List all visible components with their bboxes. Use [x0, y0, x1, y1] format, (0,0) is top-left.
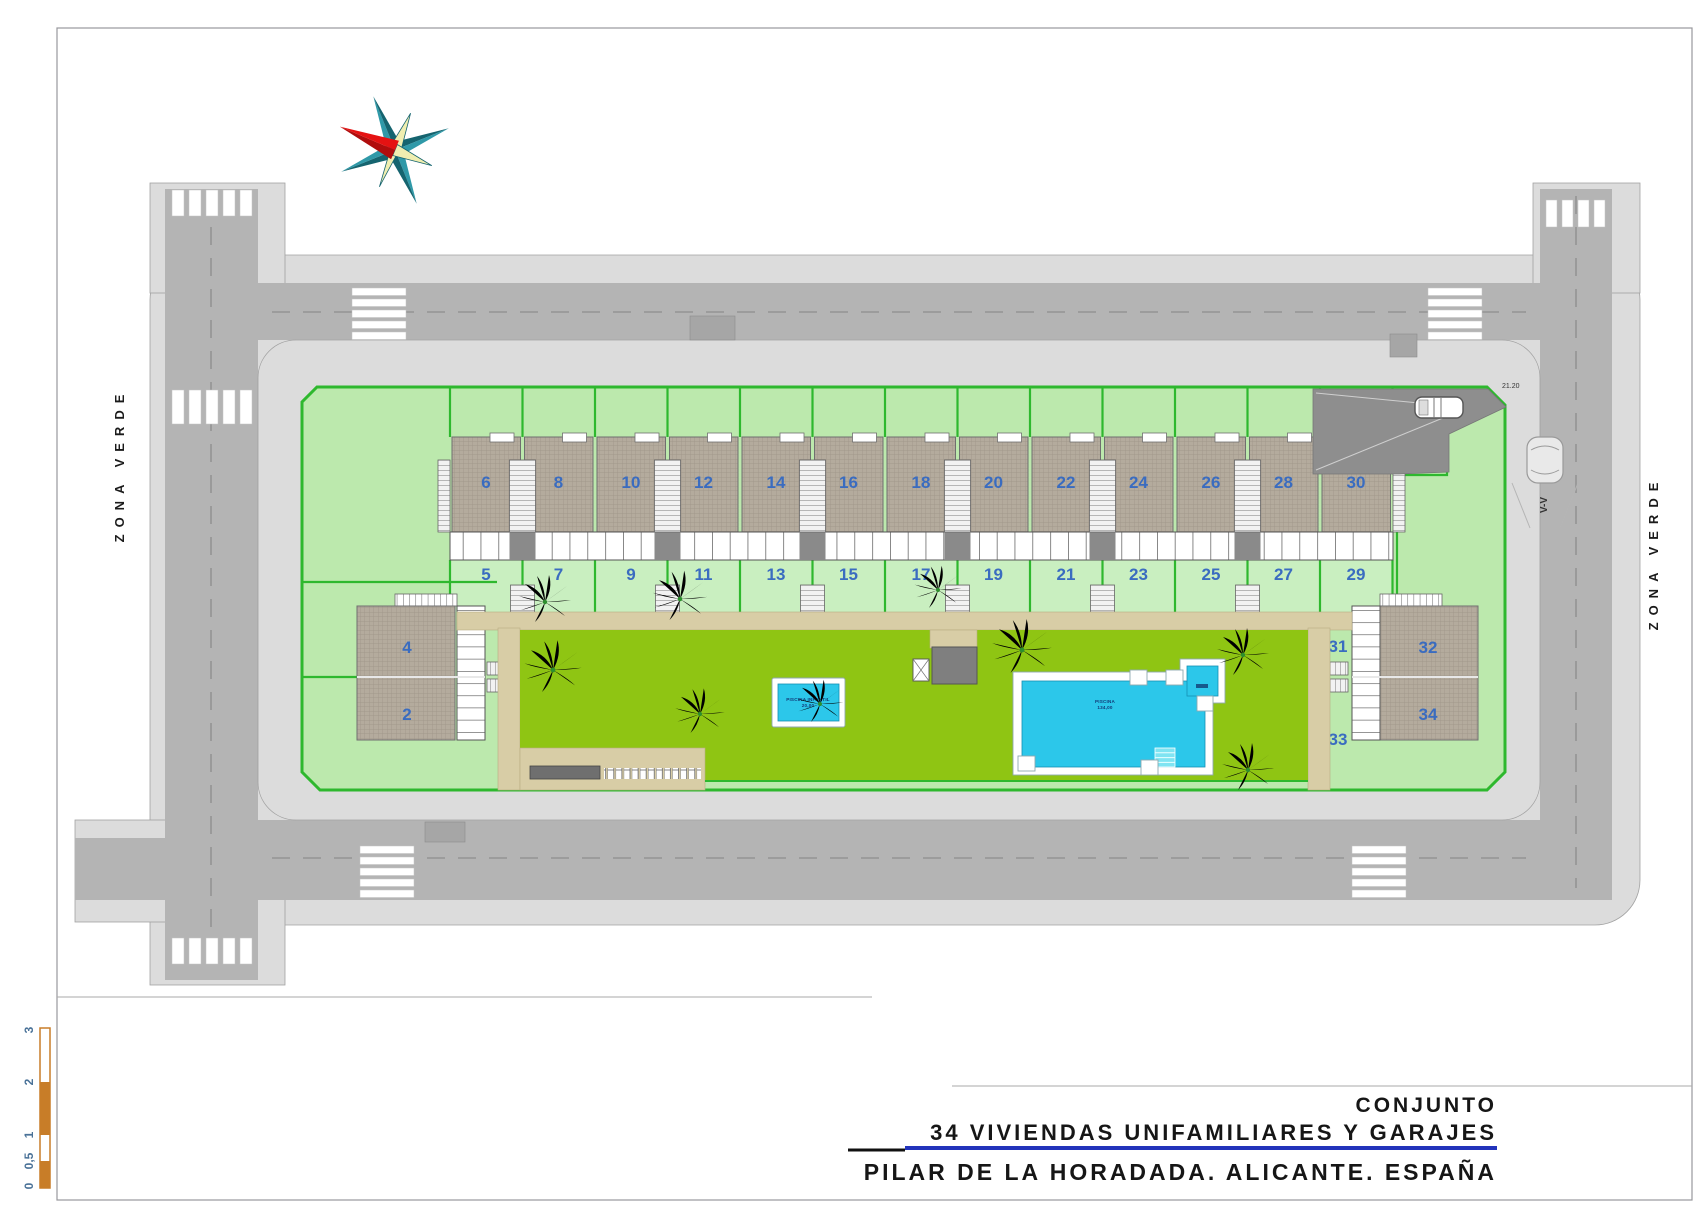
house-number: 16	[839, 473, 858, 492]
utility-box	[913, 659, 929, 681]
road-bay-corner	[1390, 334, 1417, 357]
garden-number: 7	[554, 565, 563, 584]
house-number: 8	[554, 473, 563, 492]
scale-tick: 1	[22, 1131, 36, 1138]
garden-number: 5	[481, 565, 490, 584]
garden-number: 13	[767, 565, 786, 584]
crosswalk-top-road-right	[1428, 288, 1482, 340]
main-pool: PISCINA 134,00	[1013, 659, 1225, 775]
car-icon	[1415, 397, 1463, 418]
bench-row	[604, 768, 701, 779]
vv-parking-label: V-V	[1539, 497, 1550, 513]
utility-apron	[930, 630, 977, 648]
road-bay-top	[690, 316, 735, 340]
title-block: CONJUNTO 34 VIVIENDAS UNIFAMILIARES Y GA…	[848, 1094, 1497, 1185]
garden-number: 25	[1202, 565, 1221, 584]
crosswalk-top-road-left	[352, 288, 406, 340]
house-number: 20	[984, 473, 1003, 492]
zona-verde-left-label: ZONA VERDE	[112, 388, 127, 543]
project-subtitle: 34 VIVIENDAS UNIFAMILIARES Y GARAJES	[930, 1120, 1497, 1145]
zona-verde-right-label: ZONA VERDE	[1646, 476, 1661, 631]
compass-rose-icon	[340, 96, 449, 204]
path-right	[1308, 628, 1330, 790]
main-pool-label: PISCINA	[1095, 699, 1116, 704]
road-bay-bottom	[425, 822, 465, 842]
path-left	[498, 628, 520, 790]
garden-number: 19	[984, 565, 1003, 584]
garden-number: 33	[1329, 730, 1348, 749]
garden-number: 15	[839, 565, 858, 584]
crosswalk-left-road	[172, 390, 252, 424]
crosswalk-bottom-left-stub	[172, 938, 252, 964]
utility-building	[932, 647, 977, 684]
main-pool-area: 134,00	[1097, 705, 1112, 710]
terrace-strip	[1352, 606, 1380, 740]
house-number: 34	[1419, 705, 1438, 724]
house-number: 18	[912, 473, 931, 492]
house-number: 30	[1347, 473, 1366, 492]
house-number: 12	[694, 473, 713, 492]
garden-number: 9	[626, 565, 635, 584]
crosswalk-top-left-stub	[172, 190, 252, 216]
scale-bar: 3 2 1 0,5 0	[22, 1026, 50, 1189]
kids-pool: PISCINA INFANTIL 20,00	[772, 678, 845, 727]
pergola-strip	[1380, 594, 1442, 606]
scale-tick: 0,5	[22, 1152, 36, 1169]
scale-tick: 0	[22, 1182, 36, 1189]
garden-number: 23	[1129, 565, 1148, 584]
house-number: 26	[1202, 473, 1221, 492]
house-number: 24	[1129, 473, 1148, 492]
path-top	[457, 612, 1352, 630]
house-number: 32	[1419, 638, 1438, 657]
garden-number: 27	[1274, 565, 1293, 584]
house-number: 14	[767, 473, 786, 492]
pergola-strip	[395, 594, 457, 606]
site-plan-sheet: V-V 6 5 8 7 10 9 12 11	[0, 0, 1704, 1209]
crosswalk-bottom-road-right	[1352, 846, 1406, 898]
garden-number: 21	[1057, 565, 1076, 584]
house-number: 4	[402, 638, 412, 657]
garden-number: 29	[1347, 565, 1366, 584]
house-number: 22	[1057, 473, 1076, 492]
house-number: 28	[1274, 473, 1293, 492]
project-location: PILAR DE LA HORADADA. ALICANTE. ESPAÑA	[864, 1158, 1497, 1185]
house-number: 2	[402, 705, 411, 724]
garden-number: 11	[695, 565, 713, 584]
crosswalk-bottom-road-left	[360, 846, 414, 898]
road-branch-west	[75, 838, 170, 900]
driveway-dimension: 21.20	[1502, 383, 1520, 390]
scale-tick: 3	[22, 1026, 36, 1033]
spa-bench	[1196, 684, 1208, 688]
entrance-structure	[530, 766, 600, 779]
house-number: 6	[481, 473, 490, 492]
kids-pool-area: 20,00	[802, 703, 815, 708]
house-number: 10	[622, 473, 641, 492]
garden-number: 31	[1329, 637, 1348, 656]
scale-tick: 2	[22, 1078, 36, 1085]
project-title: CONJUNTO	[1356, 1094, 1497, 1117]
